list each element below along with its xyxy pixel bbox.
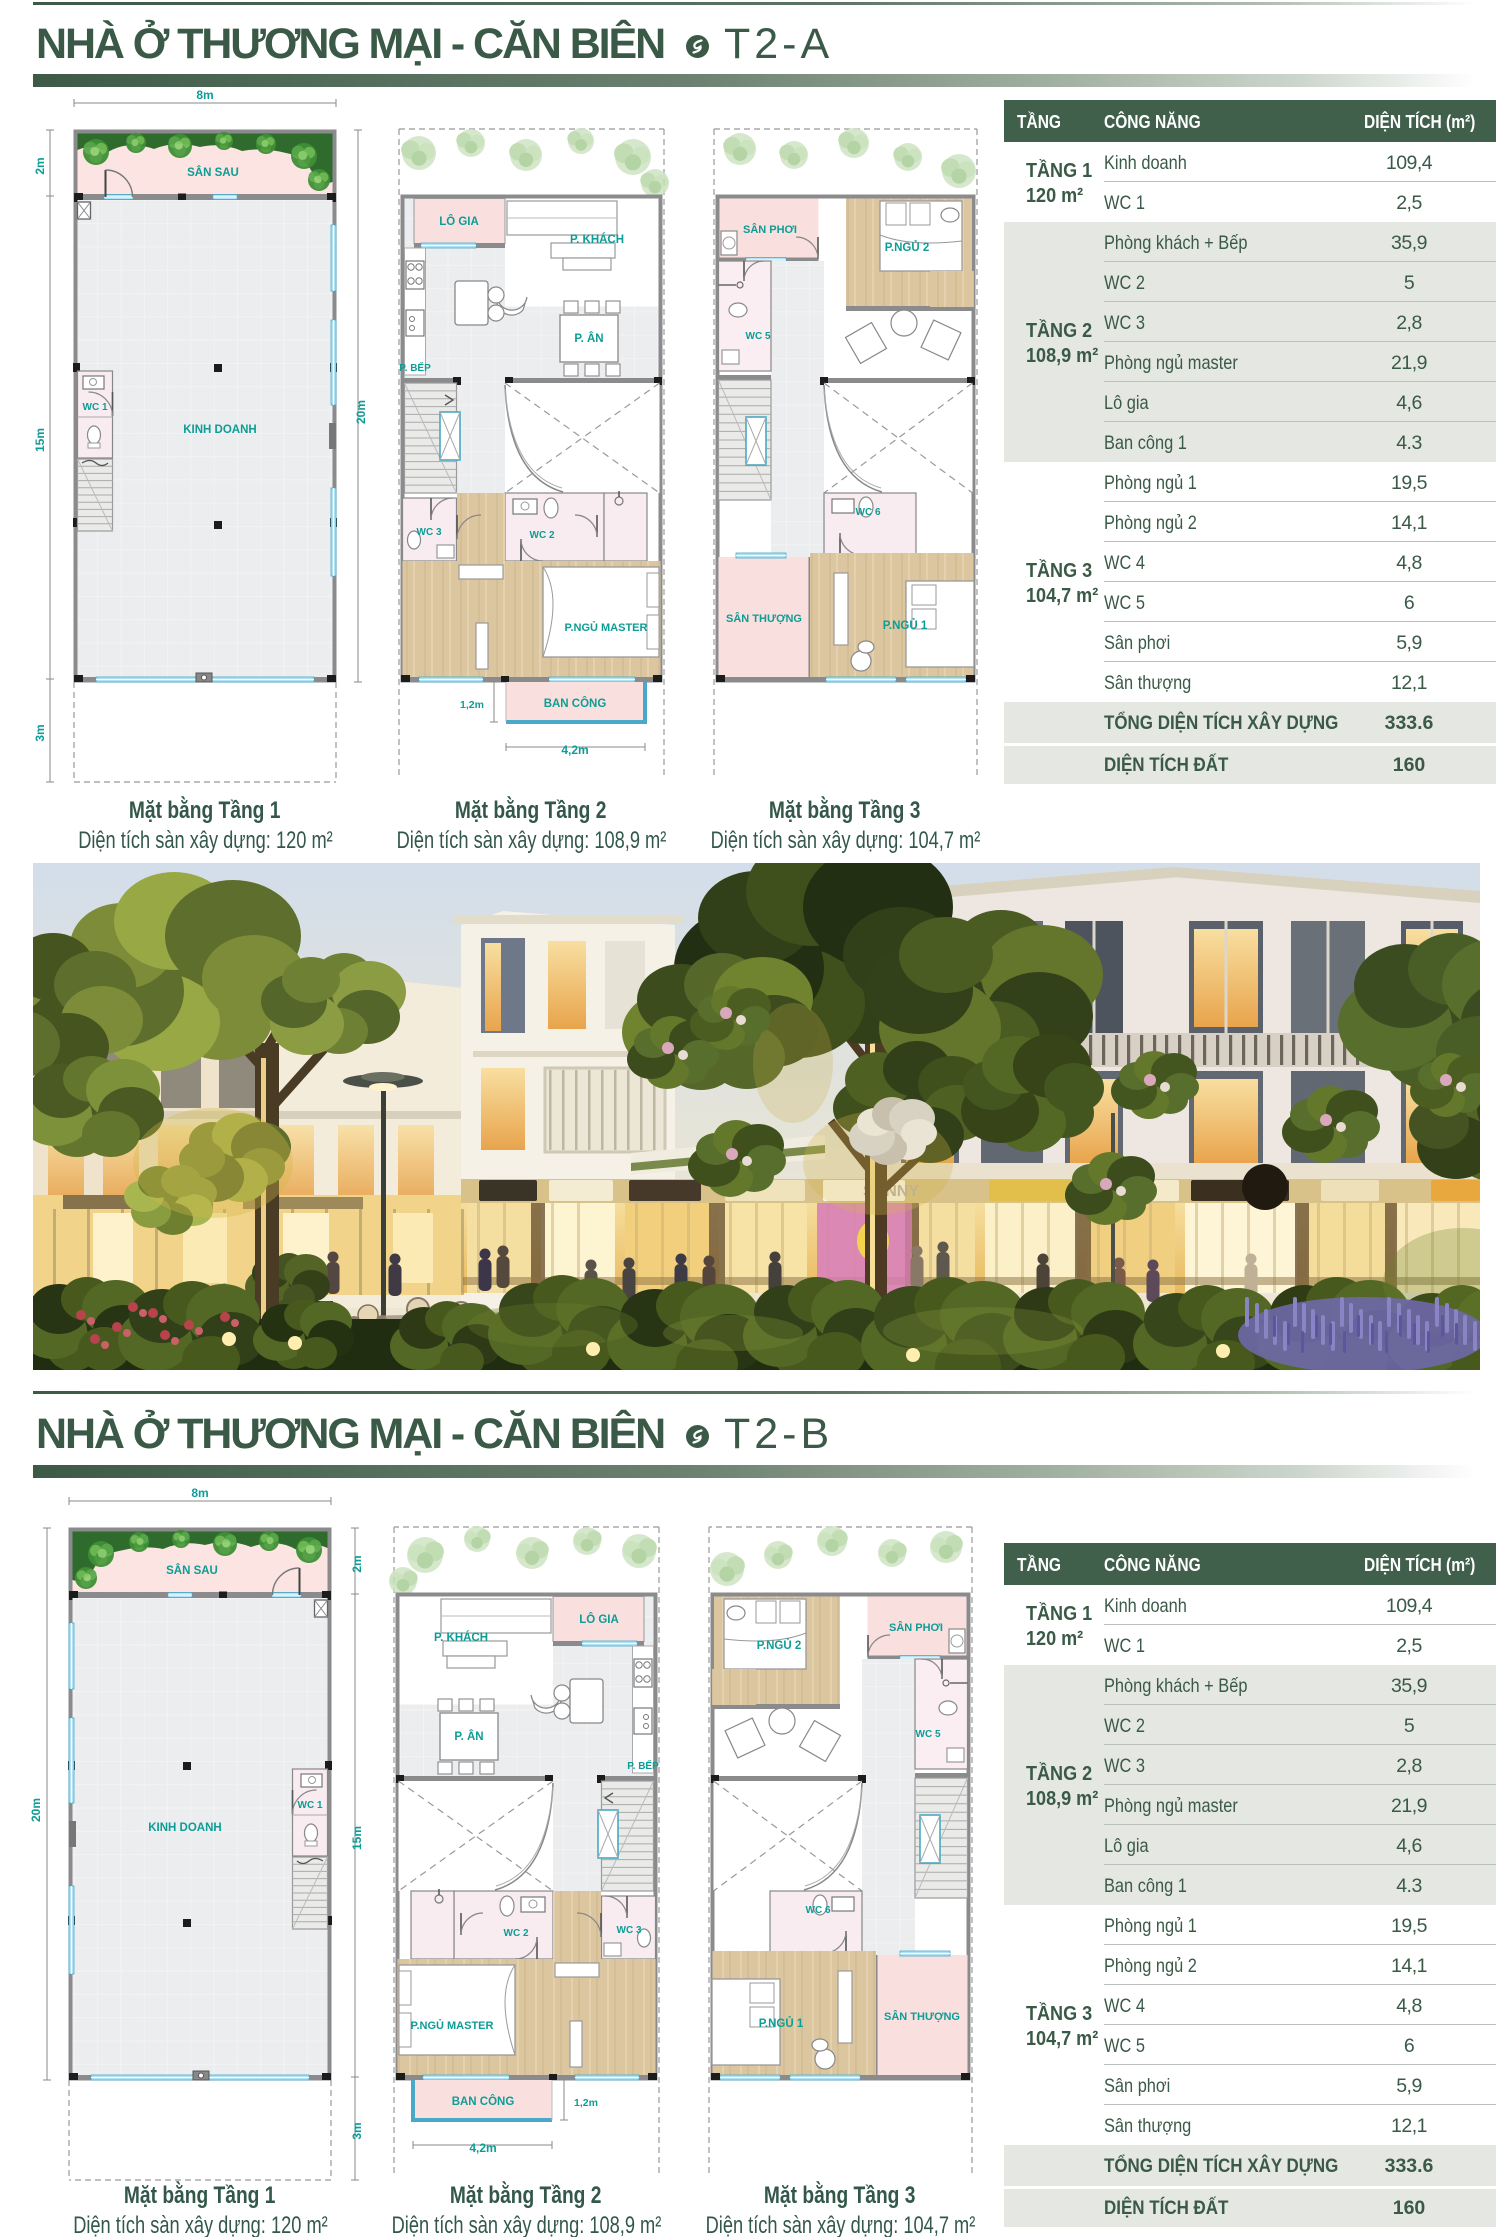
svg-text:P. KHÁCH: P. KHÁCH xyxy=(570,233,624,246)
svg-text:WC 3: WC 3 xyxy=(417,527,442,538)
svg-text:4,2m: 4,2m xyxy=(469,2141,496,2155)
svg-text:1,2m: 1,2m xyxy=(574,2097,598,2109)
svg-text:P. BẾP: P. BẾP xyxy=(627,1759,659,1772)
svg-text:SÂN PHƠI: SÂN PHƠI xyxy=(743,223,797,236)
svg-text:P.NGỦ MASTER: P.NGỦ MASTER xyxy=(565,621,648,634)
svg-text:P.NGỦ MASTER: P.NGỦ MASTER xyxy=(411,2019,494,2032)
svg-text:WC 2: WC 2 xyxy=(504,1928,529,1939)
svg-text:P.NGỦ 2: P.NGỦ 2 xyxy=(757,1639,802,1652)
svg-text:WC 1: WC 1 xyxy=(83,402,108,413)
svg-text:15m: 15m xyxy=(33,428,47,452)
svg-text:2m: 2m xyxy=(33,157,47,174)
svg-text:WC 3: WC 3 xyxy=(617,1925,642,1936)
svg-text:BAN CÔNG: BAN CÔNG xyxy=(544,697,607,710)
svg-text:1,2m: 1,2m xyxy=(460,699,484,711)
svg-text:15m: 15m xyxy=(350,1826,364,1850)
svg-text:LÔ GIA: LÔ GIA xyxy=(439,215,479,228)
svg-text:3m: 3m xyxy=(33,724,47,741)
svg-text:P. ÂN: P. ÂN xyxy=(574,332,603,345)
svg-text:P.NGỦ 1: P.NGỦ 1 xyxy=(759,2017,804,2030)
svg-text:4,2m: 4,2m xyxy=(561,743,588,757)
svg-text:WC 1: WC 1 xyxy=(298,1800,323,1811)
svg-text:WC 6: WC 6 xyxy=(806,1905,831,1916)
svg-text:2m: 2m xyxy=(350,1555,364,1572)
svg-text:SÂN SAU: SÂN SAU xyxy=(187,166,239,179)
svg-text:P.NGỦ 2: P.NGỦ 2 xyxy=(885,241,930,254)
svg-text:SÂN PHƠI: SÂN PHƠI xyxy=(889,1621,943,1634)
svg-text:8m: 8m xyxy=(191,1488,208,1500)
svg-text:SÂN THƯỢNG: SÂN THƯỢNG xyxy=(726,612,802,625)
svg-text:LÔ GIA: LÔ GIA xyxy=(579,1613,619,1626)
svg-text:P. KHÁCH: P. KHÁCH xyxy=(434,1631,488,1644)
svg-text:20m: 20m xyxy=(354,400,368,424)
svg-text:8m: 8m xyxy=(196,90,213,102)
svg-text:BAN CÔNG: BAN CÔNG xyxy=(452,2095,515,2108)
svg-text:KINH DOANH: KINH DOANH xyxy=(183,424,256,436)
svg-text:P. BẾP: P. BẾP xyxy=(399,361,431,374)
svg-text:KINH DOANH: KINH DOANH xyxy=(148,1822,221,1834)
svg-text:WC 5: WC 5 xyxy=(916,1729,941,1740)
svg-text:WC 6: WC 6 xyxy=(856,507,881,518)
svg-text:SÂN THƯỢNG: SÂN THƯỢNG xyxy=(884,2010,960,2023)
svg-text:WC 5: WC 5 xyxy=(746,331,771,342)
svg-text:P.NGỦ 1: P.NGỦ 1 xyxy=(883,619,928,632)
svg-text:WC 2: WC 2 xyxy=(530,530,555,541)
svg-text:3m: 3m xyxy=(350,2122,364,2139)
svg-text:SÂN SAU: SÂN SAU xyxy=(166,1564,218,1577)
svg-text:20m: 20m xyxy=(29,1798,43,1822)
svg-text:P. ÂN: P. ÂN xyxy=(454,1730,483,1743)
